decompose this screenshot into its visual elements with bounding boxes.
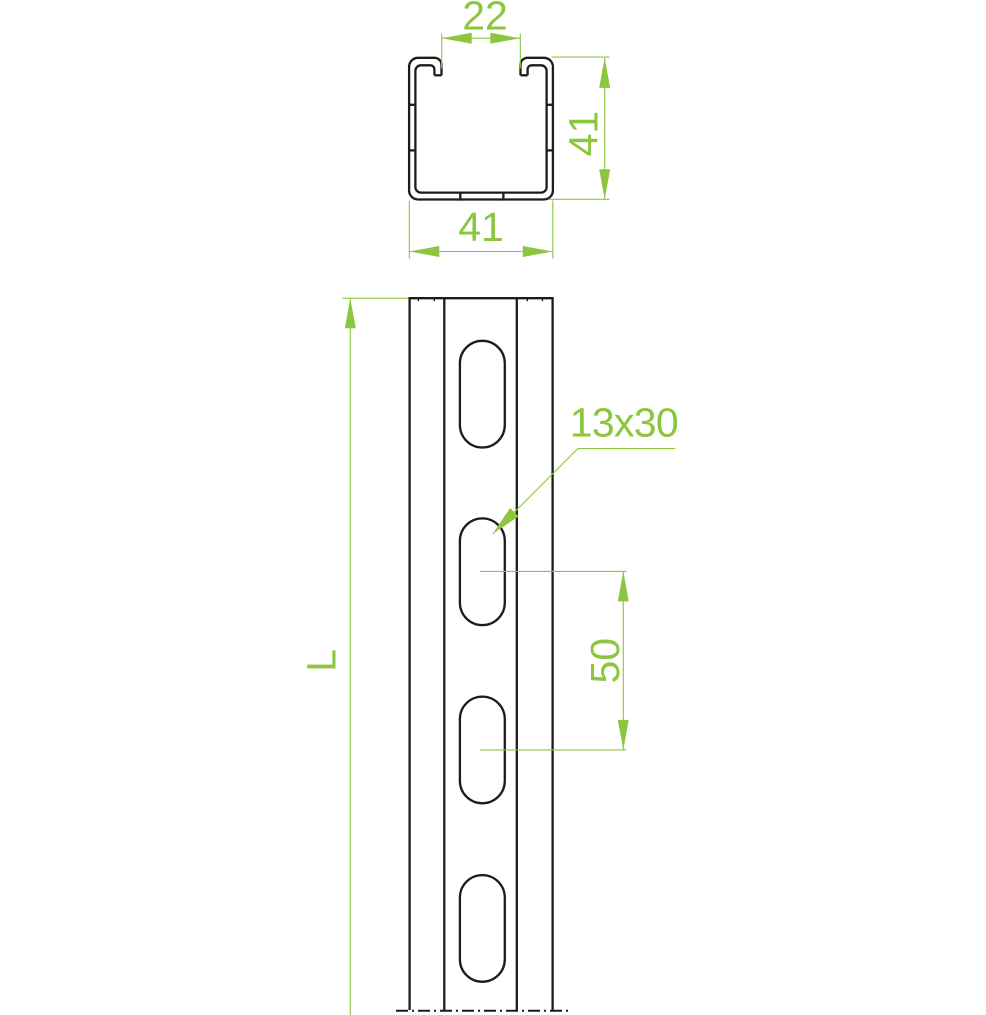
svg-text:22: 22 bbox=[462, 0, 508, 39]
svg-text:50: 50 bbox=[582, 638, 628, 684]
svg-text:L: L bbox=[298, 649, 344, 672]
svg-text:41: 41 bbox=[458, 204, 504, 250]
svg-text:41: 41 bbox=[561, 111, 607, 157]
svg-text:13x30: 13x30 bbox=[570, 399, 678, 445]
